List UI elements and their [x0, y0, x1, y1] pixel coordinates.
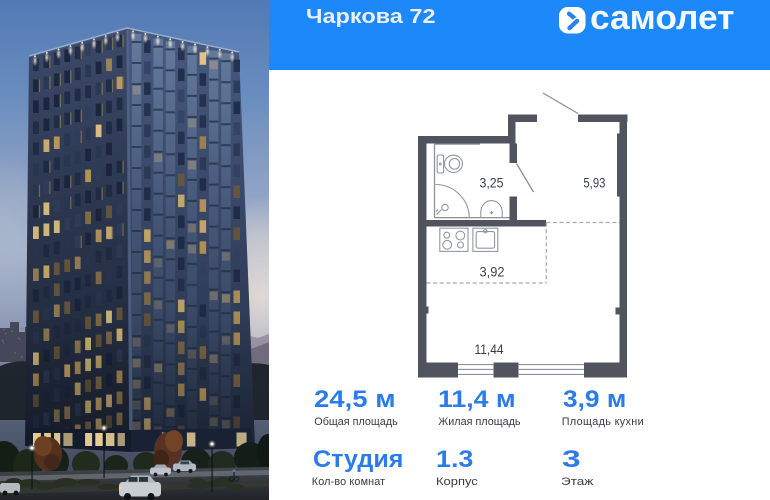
svg-text:11,44: 11,44 [475, 341, 504, 357]
svg-text:3,92: 3,92 [480, 263, 505, 279]
svg-text:5,93: 5,93 [583, 174, 605, 190]
svg-text:3,25: 3,25 [480, 174, 504, 190]
